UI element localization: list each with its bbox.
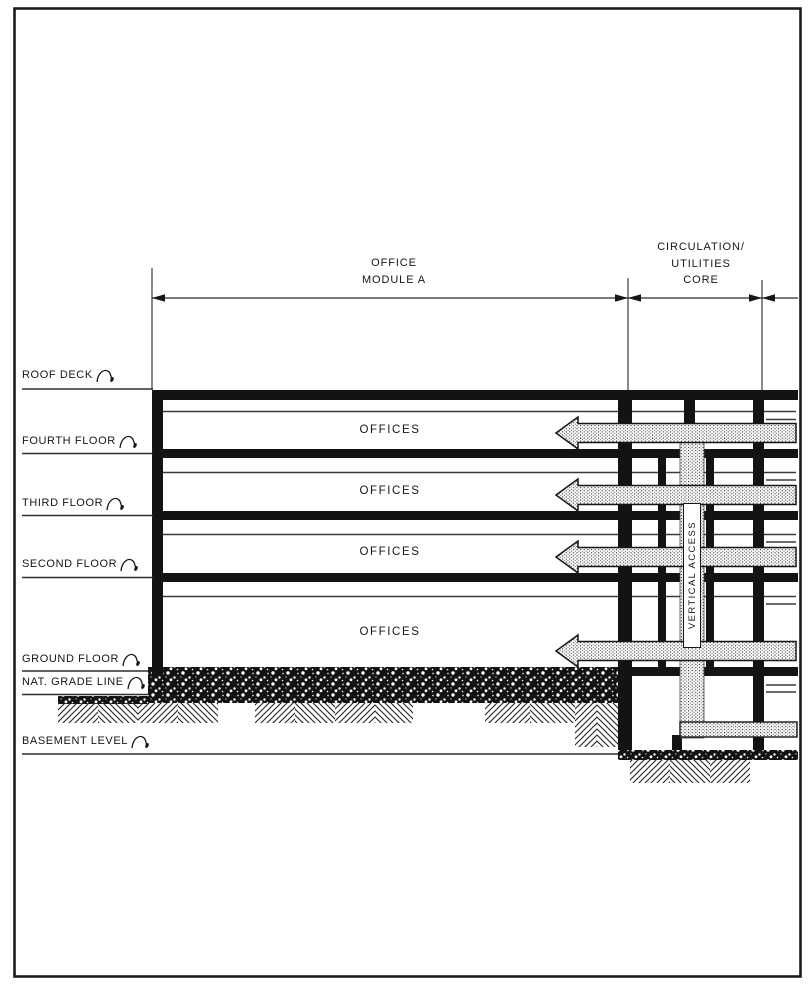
leader-squiggle-icon (118, 433, 142, 451)
leader-squiggle-icon (130, 733, 154, 751)
leader-squiggle-icon (119, 556, 143, 574)
roof-slab (152, 390, 798, 400)
leader-squiggle-icon (121, 651, 145, 669)
room-label-offices: OFFICES (335, 485, 445, 497)
level-label-nat-grade-line: NAT. GRADE LINE (22, 675, 150, 692)
vertical-access-label: VERTICAL ACCESS (687, 521, 698, 629)
core-right-wall (753, 390, 764, 760)
leader-squiggle-icon (95, 367, 119, 385)
level-label-third-floor: THIRD FLOOR (22, 496, 129, 513)
level-label-text: SECOND FLOOR (22, 557, 117, 571)
level-label-roof-deck: ROOF DECK (22, 368, 119, 385)
dimension-label-line: OFFICE (314, 255, 474, 272)
architectural-section-drawing: OFFICE MODULE A CIRCULATION/ UTILITIES C… (0, 0, 809, 985)
vertical-access-label-box: VERTICAL ACCESS (683, 503, 701, 648)
room-label-offices: OFFICES (335, 424, 445, 436)
basement-slab (618, 750, 798, 783)
room-label-offices: OFFICES (335, 546, 445, 558)
level-label-ground-floor: GROUND FLOOR (22, 652, 145, 669)
dimension-label-module-a: OFFICE MODULE A (314, 255, 474, 289)
module-a-left-wall (152, 390, 163, 676)
level-label-text: THIRD FLOOR (22, 496, 103, 510)
level-label-basement-level: BASEMENT LEVEL (22, 734, 154, 751)
room-label-offices: OFFICES (335, 626, 445, 638)
leader-squiggle-icon (126, 674, 150, 692)
dimension-label-core: CIRCULATION/ UTILITIES CORE (641, 239, 761, 289)
dimension-label-line: CORE (641, 272, 761, 289)
dimension-label-line: MODULE A (314, 272, 474, 289)
level-label-fourth-floor: FOURTH FLOOR (22, 434, 142, 451)
level-label-text: BASEMENT LEVEL (22, 734, 128, 748)
level-label-text: ROOF DECK (22, 368, 93, 382)
core-left-wall (618, 390, 632, 760)
dimension-lines (152, 294, 798, 302)
level-label-text: FOURTH FLOOR (22, 434, 116, 448)
dimension-label-line: CIRCULATION/ (641, 239, 761, 256)
leader-squiggle-icon (105, 495, 129, 513)
dimension-label-line: UTILITIES (641, 256, 761, 273)
level-label-second-floor: SECOND FLOOR (22, 557, 143, 574)
level-label-text: NAT. GRADE LINE (22, 675, 124, 689)
basement-circulation-band (680, 722, 797, 737)
level-label-text: GROUND FLOOR (22, 652, 119, 666)
